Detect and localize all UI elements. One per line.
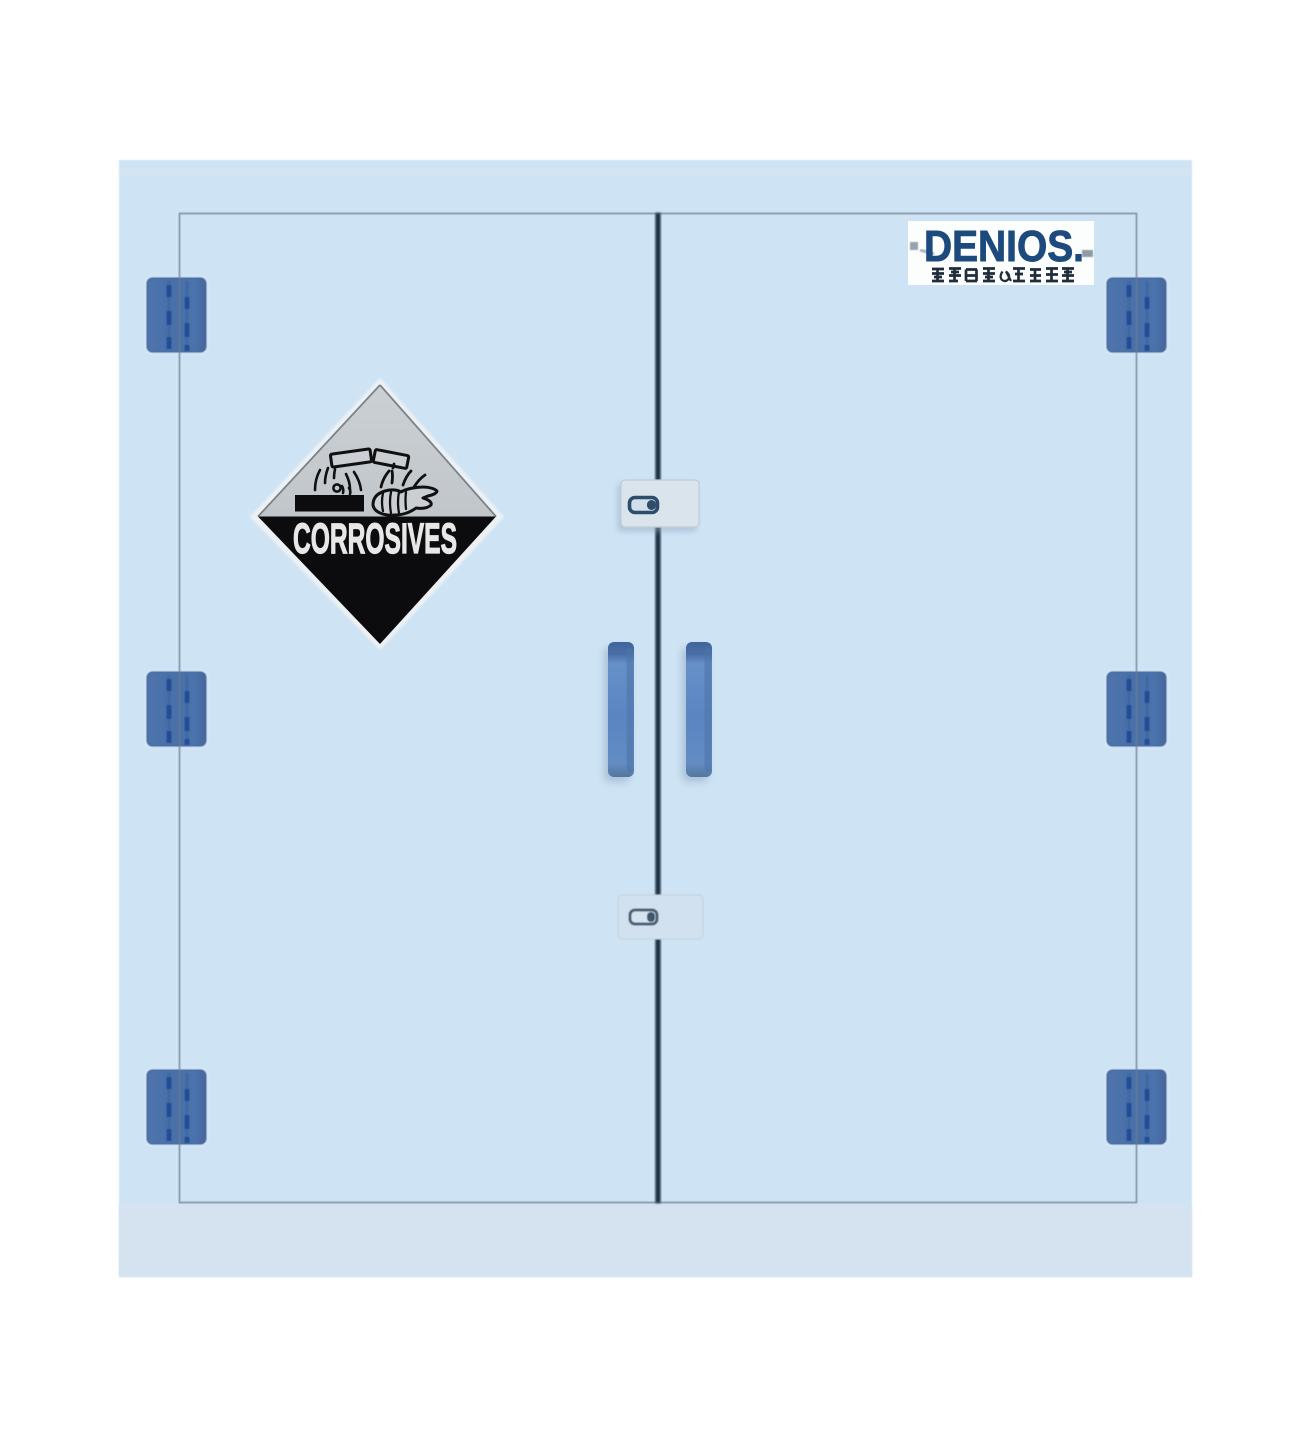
svg-text:DENIOS.: DENIOS. [924,222,1084,271]
svg-text:CORROSIVES: CORROSIVES [293,515,457,563]
